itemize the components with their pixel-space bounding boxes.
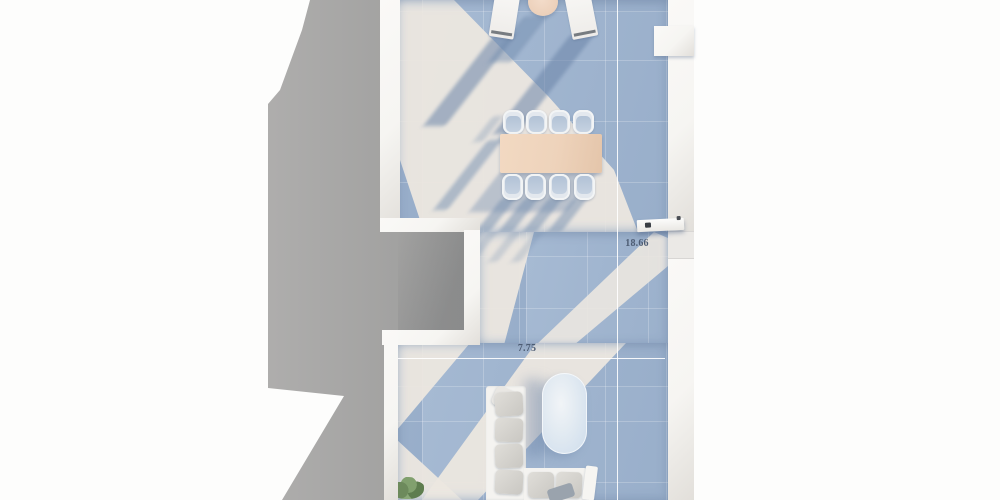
chair-seat xyxy=(529,116,544,132)
dimension-label-vertical: 18.66 xyxy=(620,238,654,249)
oval-tub xyxy=(542,373,587,454)
wall-notch-right xyxy=(464,230,480,345)
chair-seat xyxy=(528,176,543,194)
door-leaf xyxy=(637,218,685,232)
chair-seat xyxy=(577,176,592,194)
dining-chair xyxy=(502,174,523,200)
chair-seat xyxy=(506,116,521,132)
sofa-cushion xyxy=(494,469,523,494)
sofa-cushion xyxy=(495,418,524,443)
notch-interior-shadow xyxy=(398,232,464,330)
cast-shadow xyxy=(524,379,544,457)
chair-seat xyxy=(505,176,520,194)
dimension-line-horizontal xyxy=(398,358,665,359)
wall-left-upper xyxy=(380,0,400,232)
dining-chair xyxy=(503,110,524,134)
door-hinge xyxy=(677,216,681,220)
chair-seat xyxy=(576,116,591,132)
wall-pillar-step xyxy=(654,26,694,56)
upper-terrace-floor xyxy=(396,0,668,232)
dining-chair xyxy=(525,174,546,200)
potted-plant xyxy=(396,477,424,499)
sun-lounger xyxy=(564,0,599,40)
sofa-backrest xyxy=(582,465,598,500)
chair-seat xyxy=(552,116,567,132)
dining-chair xyxy=(549,110,570,134)
wall-left-lower xyxy=(384,330,398,500)
dimension-label-horizontal: 7.75 xyxy=(507,343,547,354)
dining-table xyxy=(500,134,602,173)
chair-seat xyxy=(552,176,567,194)
door-handle xyxy=(645,223,651,228)
sofa-cushion xyxy=(494,391,523,416)
dining-chair xyxy=(573,110,594,134)
dimension-line-vertical xyxy=(617,0,618,500)
dining-chair xyxy=(526,110,547,134)
dining-chair xyxy=(574,174,595,200)
wall-right-lower xyxy=(668,259,694,500)
lower-lounge-floor xyxy=(396,343,668,500)
floor-plan-render: 18.66 7.75 xyxy=(0,0,1000,500)
sofa-cushion xyxy=(495,444,524,469)
dining-chair xyxy=(549,174,570,200)
round-side-table xyxy=(528,0,558,16)
door-opening xyxy=(668,231,694,259)
